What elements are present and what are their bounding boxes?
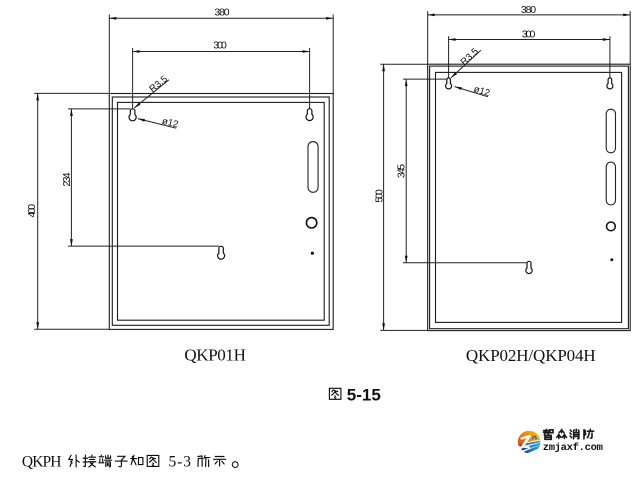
svg-text:345: 345 xyxy=(396,164,408,178)
svg-text:5-15: 5-15 xyxy=(347,386,381,405)
svg-text:500: 500 xyxy=(373,189,385,203)
svg-text:234: 234 xyxy=(61,172,73,186)
svg-text:QKP01H: QKP01H xyxy=(184,345,246,364)
svg-text:zmjaxf.com: zmjaxf.com xyxy=(543,442,603,454)
svg-text:300: 300 xyxy=(522,29,536,41)
svg-text:380: 380 xyxy=(521,4,536,16)
svg-text:QKPH: QKPH xyxy=(22,454,62,471)
svg-text:QKP02H/QKP04H: QKP02H/QKP04H xyxy=(466,346,596,365)
svg-text:5-3: 5-3 xyxy=(169,454,192,471)
svg-text:300: 300 xyxy=(213,40,227,52)
svg-text:400: 400 xyxy=(26,204,38,218)
svg-text:380: 380 xyxy=(214,6,229,18)
